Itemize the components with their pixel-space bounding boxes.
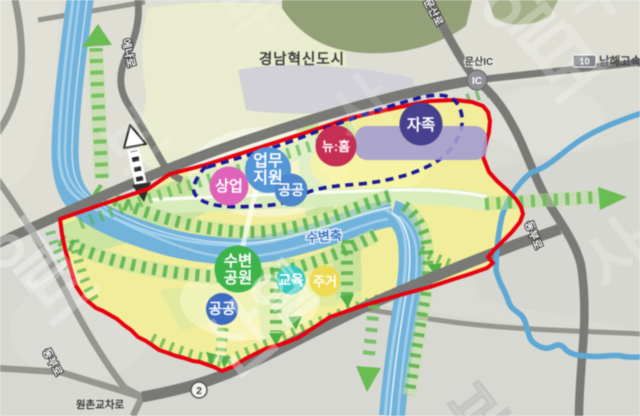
svg-text:뉴:홈: 뉴:홈	[322, 139, 350, 154]
svg-text:공공: 공공	[278, 182, 304, 198]
svg-text:IC: IC	[472, 76, 482, 87]
svg-text:수변축: 수변축	[306, 228, 343, 245]
svg-text:업무: 업무	[253, 152, 283, 170]
svg-text:원촌교차로: 원촌교차로	[76, 398, 125, 411]
svg-text:경남혁신도시: 경남혁신도시	[259, 50, 345, 68]
svg-text:2: 2	[196, 385, 202, 397]
svg-text:문산IC: 문산IC	[465, 55, 493, 68]
svg-text:상업: 상업	[215, 178, 243, 195]
svg-text:수변: 수변	[224, 252, 253, 270]
svg-text:주거: 주거	[313, 274, 337, 289]
svg-text:자족: 자족	[407, 116, 436, 134]
